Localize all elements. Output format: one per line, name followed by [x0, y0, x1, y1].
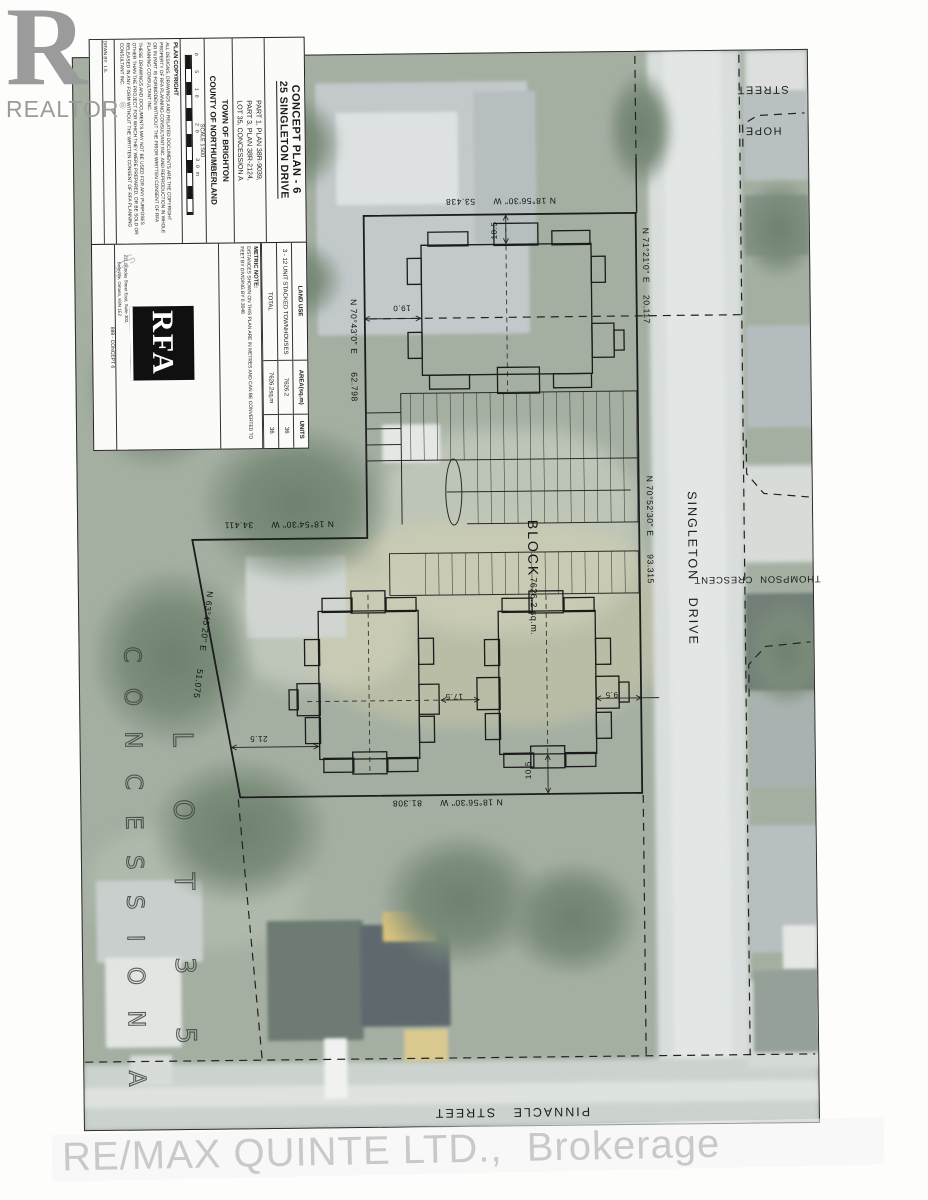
- bearing-east-upper: N 71°21'0" E 20.117: [641, 228, 652, 324]
- land-use-row-total: TOTAL 7626.2sq.m 36: [261, 243, 278, 448]
- metric-note-cell: METRIC NOTE: DISTANCES SHOWN ON THIS PLA…: [218, 243, 262, 448]
- tree-cluster: [738, 178, 819, 281]
- dim-north-setback: 10.5: [490, 221, 499, 239]
- land-use-row-townhouses: 3 - 12 UNIT STACKED TOWNHOUSES 7626.2 36: [276, 243, 293, 448]
- street-label-hope: HOPE STREET: [736, 54, 790, 165]
- bearing-east: N 70°52'30" E 93.315: [645, 476, 656, 584]
- county: COUNTY OF NORTHUMBERLAND: [206, 41, 220, 241]
- driveway-patch: [404, 1029, 448, 1061]
- area-header: AREA(sq.m): [293, 361, 308, 415]
- street-label-pinnacle: PINNACLE STREET: [434, 1104, 590, 1120]
- units-header: UNITS: [294, 415, 308, 445]
- copyright-para1: ALL DESIGNS, DRAWINGS AND RELATED DOCUME…: [144, 42, 171, 240]
- row1-units: 36: [279, 415, 293, 445]
- street-label-thompson: THOMPSON CRESCENT: [694, 573, 821, 585]
- house-roof: [746, 325, 813, 428]
- hope-line1: HOPE: [737, 123, 790, 137]
- driveway-patch: [783, 925, 817, 969]
- house-roof: [267, 920, 364, 1041]
- row2-units: 36: [264, 415, 278, 445]
- drawing-title: CONCEPT PLAN - 6: [289, 40, 303, 240]
- house-roof: [473, 91, 537, 244]
- municipality-cell: TOWN OF BRIGHTON COUNTY OF NORTHUMBERLAN…: [204, 38, 234, 242]
- row1-name: 3 - 12 UNIT STACKED TOWNHOUSES: [277, 243, 292, 361]
- drawing-subtitle: 25 SINGLETON DRIVE: [277, 40, 291, 240]
- realtor-word: REALTOR: [6, 96, 120, 122]
- dim-between-buildings: 17.5: [445, 692, 463, 701]
- dim-west-setback: 19.0: [393, 303, 411, 312]
- house-roof: [753, 970, 820, 1053]
- realtor-r-mark: R: [6, 2, 127, 94]
- bearing-south: N 18°56'30" W 81.308: [392, 797, 503, 808]
- house-roof: [335, 112, 458, 205]
- title-block-lower: LAND USE AREA(sq.m) UNITS 3 - 12 UNIT ST…: [91, 242, 309, 451]
- hope-line2: STREET: [736, 82, 789, 96]
- row2-area: 7626.2sq.m: [263, 361, 278, 415]
- copyright-heading: PLAN COPYRIGHT: [172, 42, 179, 96]
- house-roof: [750, 695, 817, 788]
- dim-east-setback: 9.5: [605, 690, 618, 699]
- scale-cell: SCALE 1:500 0 5 10 20 30m: [180, 39, 206, 243]
- realtor-wordmark: REALTOR®: [6, 96, 127, 123]
- tree-cluster: [502, 858, 643, 980]
- metric-note-body: DISTANCES SHOWN ON THIS PLAN ARE IN METR…: [237, 246, 252, 445]
- tree-cluster: [743, 596, 820, 709]
- concession-a-label: C O N C E S S I O NA: [91, 548, 175, 1096]
- registered-symbol: ®: [120, 100, 128, 110]
- bearing-west-step: N 18°54'30" W 34.411: [224, 519, 334, 530]
- municipality: TOWN OF BRIGHTON: [218, 40, 232, 240]
- land-use-table: LAND USE AREA(sq.m) UNITS 3 - 12 UNIT ST…: [260, 243, 308, 449]
- concession-word: C O N C E S S I O N: [119, 646, 149, 1036]
- dim-south-setback: 10.5: [524, 761, 533, 779]
- thompson-crescent-pavement: [741, 465, 818, 563]
- job-number-cell: 899 - CONCEPT 6: [101, 245, 116, 450]
- street-label-singleton: SINGLETON DRIVE: [685, 491, 701, 646]
- block-name: BLOCK: [525, 520, 542, 578]
- land-use-header-row: LAND USE AREA(sq.m) UNITS: [291, 243, 308, 448]
- legal-description-cell: PART 1, PLAN 38R-9039, PART 3, PLAN 38R-…: [232, 38, 266, 242]
- trailer: [324, 1038, 348, 1098]
- realtor-logo: R REALTOR®: [6, 2, 127, 123]
- drawing-title-cell: CONCEPT PLAN - 6 25 SINGLETON DRIVE: [264, 38, 306, 242]
- consultant-cell: RFA 231 Dundas Street East, Suite 302, B…: [114, 244, 220, 450]
- shed-roof: [382, 424, 440, 463]
- block-label: BLOCK7626.2 sq.m.: [515, 502, 551, 636]
- dim-sw-setback: 21.5: [250, 734, 268, 743]
- row1-area: 7626.2: [278, 361, 293, 415]
- concession-letter: A: [123, 1070, 149, 1095]
- tree-cluster: [605, 68, 676, 189]
- rfa-logo: RFA: [130, 306, 195, 381]
- metric-note-heading: METRIC NOTE:: [252, 246, 258, 288]
- scan-tilt-wrapper: N 18°56'30" W 53.438 N 71°21'0" E 20.117…: [0, 0, 928, 1200]
- block-area: 7626.2 sq.m.: [528, 577, 539, 635]
- land-use-header: LAND USE: [292, 243, 307, 361]
- row2-name: TOTAL: [262, 243, 277, 361]
- scanned-concept-plan-page: N 18°56'30" W 53.438 N 71°21'0" E 20.117…: [0, 0, 928, 1200]
- bearing-north: N 18°56'30" W 53.438: [445, 196, 556, 207]
- bearing-west: N 70°43'0" E 62.798: [349, 299, 360, 402]
